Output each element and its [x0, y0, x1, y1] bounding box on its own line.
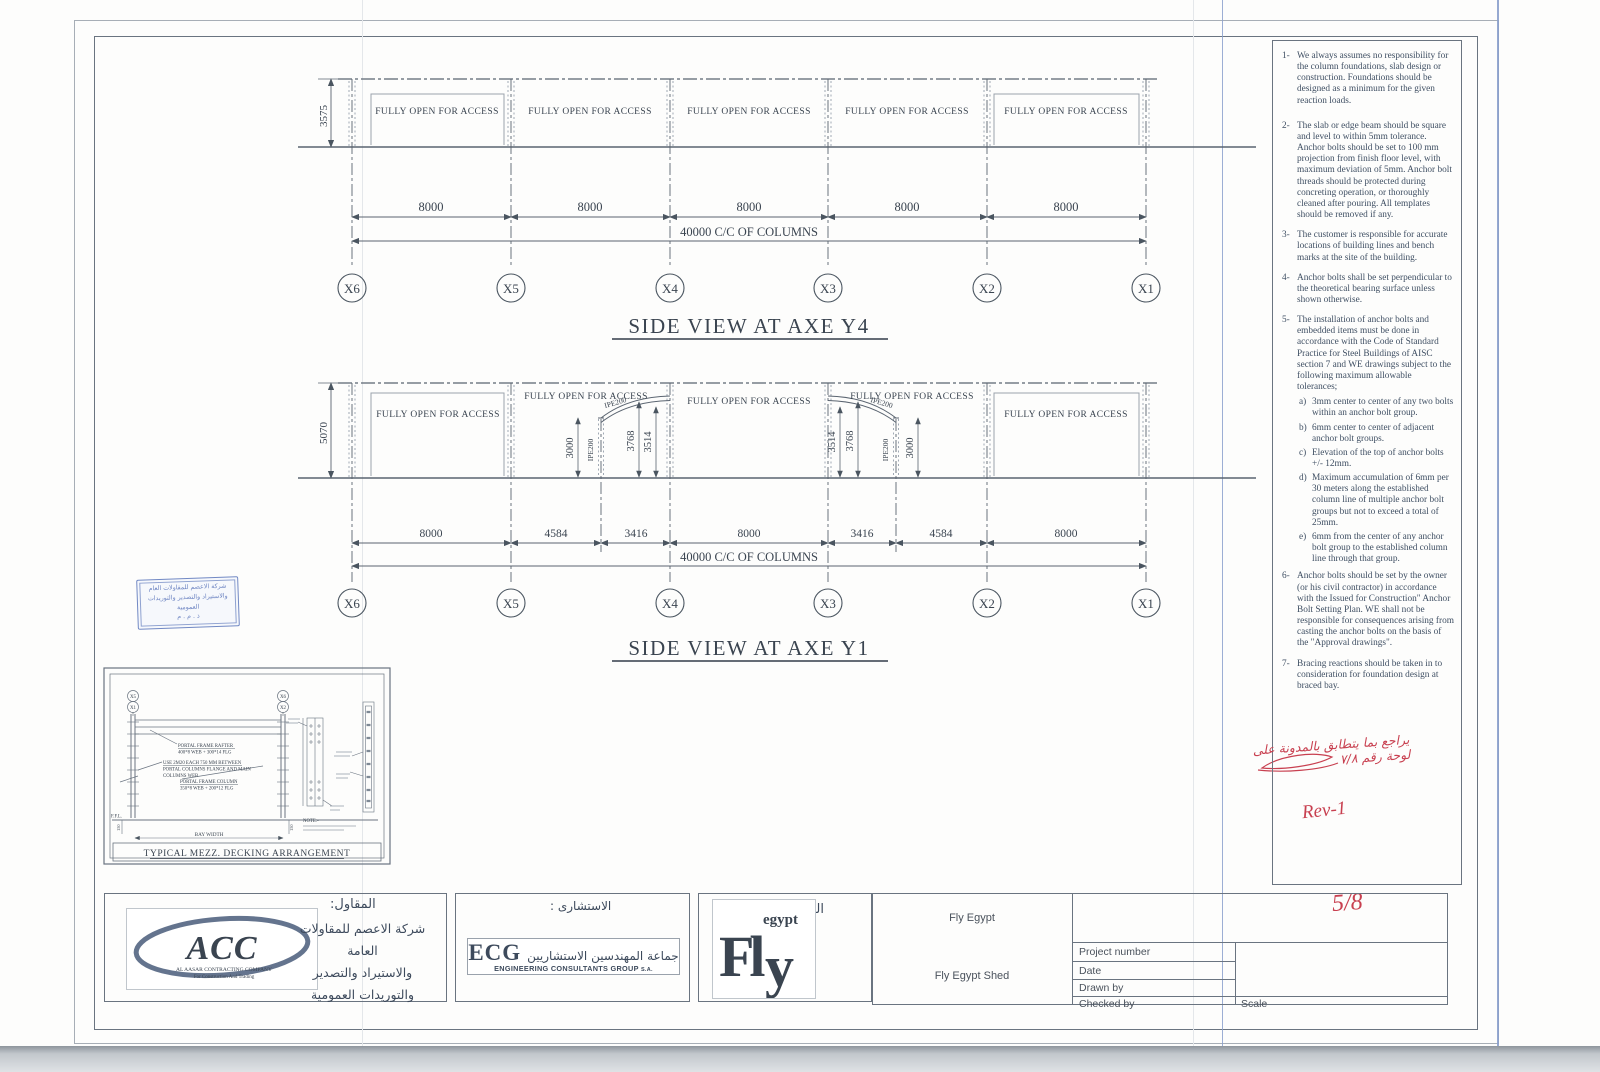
rev-annotation: Rev-1	[1301, 798, 1347, 825]
grid-bubble-x3: X3	[820, 596, 836, 611]
note-subitem: b) 6mm center to center of adjacent anch…	[1299, 423, 1454, 445]
contractor-stamp: شركة الاعصم للمقاولات العام والاستيراد و…	[136, 576, 240, 630]
view-title-y1: SIDE VIEW AT AXE Y1	[628, 636, 869, 660]
field-scale: Scale	[1241, 998, 1267, 1010]
grid-bubble-x6: X6	[344, 281, 360, 296]
open-label: FULLY OPEN FOR ACCESS	[687, 397, 811, 407]
ecg-logo-text: ECG	[468, 940, 521, 966]
detail-bolt-note-2: PORTAL COLUMNS FLANGE AND MAIN	[163, 768, 251, 773]
titleblock-row-line	[1072, 961, 1235, 962]
contractor-line: والتوريدات العمومية	[285, 984, 440, 1006]
detail-rafter-spec: 400*8 WEB + 300*14 FLG	[178, 751, 232, 756]
grid-bubble-x6: X6	[344, 596, 360, 611]
dim-total: 40000 C/C OF COLUMNS	[680, 550, 818, 564]
dim-8000: 8000	[737, 200, 762, 214]
detail-grid-x1: X1	[130, 706, 137, 711]
dim-8000: 8000	[420, 528, 443, 540]
grid-bubble-x5: X5	[503, 281, 519, 296]
note-subtext: 3mm center to center of any two bolts wi…	[1312, 397, 1454, 419]
grid-bubble-x3: X3	[820, 281, 836, 296]
grid-bubble-x2: X2	[979, 596, 995, 611]
titleblock-row-line	[1072, 979, 1235, 980]
stamp-line: ذ . م . م	[141, 611, 235, 624]
dim-8000: 8000	[895, 200, 920, 214]
open-label: FULLY OPEN FOR ACCESS	[528, 107, 652, 117]
ecg-sa: S.A.	[641, 967, 653, 973]
ecg-logo-arabic: جماعة المهندسين الاستشاريين	[527, 949, 679, 963]
note-item: 5- The installation of anchor bolts and …	[1282, 315, 1454, 393]
dim-3416: 3416	[851, 528, 874, 540]
ipe200-label: IPE200	[881, 439, 890, 462]
view-title-y4: SIDE VIEW AT AXE Y4	[628, 314, 869, 338]
fly-egypt-logo: Fl y egypt	[712, 899, 816, 999]
fly-logo-fl: Fl	[719, 924, 765, 989]
note-number: 4-	[1282, 273, 1297, 306]
open-label: FULLY OPEN FOR ACCESS	[524, 392, 648, 402]
consultant-label: الاستشارى :	[550, 899, 678, 913]
note-number: 1-	[1282, 51, 1297, 107]
note-number: 5-	[1282, 315, 1297, 393]
detail-bolt-note-1: USE 2M20 EACH 750 MM BETWEEN	[163, 761, 242, 766]
note-subitem: e) 6mm from the center of any anchor bol…	[1299, 532, 1454, 565]
detail-title: TYPICAL MEZZ. DECKING ARRANGEMENT	[144, 849, 351, 859]
grid-bubble-x1: X1	[1138, 596, 1154, 611]
ipe200-label: IPE200	[586, 439, 595, 462]
note-subtext: 6mm center to center of adjacent anchor …	[1312, 423, 1454, 445]
contractor-label: المقاول:	[330, 897, 440, 912]
dim-3575: 3575	[318, 105, 330, 128]
note-item: 6- Anchor bolts should be set by the own…	[1282, 571, 1454, 649]
note-number: 7-	[1282, 659, 1297, 692]
open-label: FULLY OPEN FOR ACCESS	[376, 410, 500, 420]
dim-3514: 3514	[643, 431, 654, 453]
dim-4584: 4584	[930, 528, 953, 540]
note-subitem: c) Elevation of the top of anchor bolts …	[1299, 448, 1454, 470]
contractor-line: شركة الاعصم للمقاولات العامة	[285, 918, 440, 962]
grid-bubble-x4: X4	[662, 281, 678, 296]
detail-grid-x5: X5	[130, 695, 137, 700]
acc-logo-subtitle: AL AASAR CONTRACTING COMPANY	[176, 967, 272, 973]
grid-bubble-x2: X2	[979, 281, 995, 296]
dim-8000: 8000	[1055, 528, 1078, 540]
note-text: The installation of anchor bolts and emb…	[1297, 315, 1454, 393]
note-number: 3-	[1282, 230, 1297, 263]
contractor-line: والاستيراد والتصدير	[285, 962, 440, 984]
dim-8000: 8000	[738, 528, 761, 540]
dim-8000: 8000	[1054, 200, 1079, 214]
grid-bubble-x4: X4	[662, 596, 678, 611]
note-text: The customer is responsible for accurate…	[1297, 230, 1454, 263]
fly-logo-egypt: egypt	[763, 912, 798, 928]
note-subtext: Maximum accumulation of 6mm per 30 meter…	[1312, 473, 1454, 529]
note-number: 6-	[1282, 571, 1297, 649]
ecg-logo: ECG جماعة المهندسين الاستشاريين ENGINEER…	[467, 938, 680, 975]
note-subitem: d) Maximum accumulation of 6mm per 30 me…	[1299, 473, 1454, 529]
acc-logo-tagline: For Construction And Trading	[194, 975, 255, 980]
note-subitem: a) 3mm center to center of any two bolts…	[1299, 397, 1454, 419]
detail-grid-x6: X6	[280, 695, 287, 700]
field-project-number: Project number	[1079, 946, 1150, 958]
dim-total: 40000 C/C OF COLUMNS	[680, 225, 818, 239]
scan-edge	[0, 1046, 1600, 1072]
open-label: FULLY OPEN FOR ACCESS	[1004, 410, 1128, 420]
ecg-caption: ENGINEERING CONSULTANTS GROUP	[494, 964, 639, 973]
grid-bubble-x1: X1	[1138, 281, 1154, 296]
ffl-label: F.F.L.	[111, 815, 122, 820]
field-date: Date	[1079, 965, 1101, 977]
note-item: 7- Bracing reactions should be taken in …	[1282, 659, 1454, 692]
note-item: 3- The customer is responsible for accur…	[1282, 230, 1454, 263]
note-subletter: c)	[1299, 448, 1312, 470]
detail-rafter-label: PORTAL FRAME RAFTER	[178, 744, 234, 749]
dim-3000: 3000	[905, 438, 916, 459]
open-label: FULLY OPEN FOR ACCESS	[850, 392, 974, 402]
acc-logo-text: ACC	[184, 930, 257, 967]
titleblock-divider	[1072, 893, 1073, 1005]
contractor-name-arabic: شركة الاعصم للمقاولات العامة والاستيراد …	[285, 918, 440, 1006]
note-text: Anchor bolts shall be set perpendicular …	[1297, 273, 1454, 306]
note-item: 1- We always assumes no responsibility f…	[1282, 51, 1454, 107]
bay-width-label: BAY WIDTH	[195, 832, 224, 838]
dim-8000: 8000	[419, 200, 444, 214]
grid-bubble-x5: X5	[503, 596, 519, 611]
note-subtext: Elevation of the top of anchor bolts +/-…	[1312, 448, 1454, 470]
dim-3514: 3514	[827, 431, 838, 453]
note-subletter: a)	[1299, 397, 1312, 419]
dim-150: 150	[289, 824, 294, 831]
project-owner: Fly Egypt	[872, 912, 1072, 924]
dim-3768: 3768	[845, 431, 856, 452]
note-text: Anchor bolts should be set by the owner …	[1297, 571, 1454, 649]
note-subtext: 6mm from the center of any anchor bolt g…	[1312, 532, 1454, 565]
titleblock-row-line	[1072, 942, 1448, 943]
project-name: Fly Egypt Shed	[872, 970, 1072, 982]
note-text: The slab or edge beam should be square a…	[1297, 121, 1454, 221]
note-subletter: e)	[1299, 532, 1312, 565]
note-item: 2- The slab or edge beam should be squar…	[1282, 121, 1454, 221]
open-label: FULLY OPEN FOR ACCESS	[375, 107, 499, 117]
fly-logo-y: y	[765, 934, 794, 998]
note-text: Bracing reactions should be taken in to …	[1297, 659, 1454, 692]
detail-grid-x2: X2	[280, 706, 287, 711]
note-number: 2-	[1282, 121, 1297, 221]
dim-5070: 5070	[318, 422, 330, 445]
note-text: We always assumes no responsibility for …	[1297, 51, 1454, 107]
field-checked-by: Checked by	[1079, 998, 1134, 1010]
open-label: FULLY OPEN FOR ACCESS	[687, 107, 811, 117]
dim-8000: 8000	[578, 200, 603, 214]
note-item: 4- Anchor bolts shall be set perpendicul…	[1282, 273, 1454, 306]
note-subletter: d)	[1299, 473, 1312, 529]
detail-column-spec: 350*8 WEB + 200*12 FLG	[180, 787, 234, 792]
detail-note-label: NOTE:-	[303, 819, 319, 824]
note-subletter: b)	[1299, 423, 1312, 445]
drawing-sheet: FULLY OPEN FOR ACCESS FULLY OPEN FOR ACC…	[0, 0, 1600, 1072]
open-label: FULLY OPEN FOR ACCESS	[845, 107, 969, 117]
dim-3416: 3416	[625, 528, 648, 540]
dim-3768: 3768	[626, 431, 637, 452]
dim-4584: 4584	[545, 528, 568, 540]
field-drawn-by: Drawn by	[1079, 982, 1123, 994]
detail-column-label: PORTAL FRAME COLUMN	[180, 780, 238, 785]
side-view-y1-linework	[298, 383, 1256, 661]
mezz-detail-linework	[104, 668, 390, 864]
open-label: FULLY OPEN FOR ACCESS	[1004, 107, 1128, 117]
project-box	[872, 893, 1448, 1005]
detail-bolt-note-3: COLUMNS WEB	[163, 774, 198, 779]
titleblock-row-line	[1072, 996, 1448, 997]
dim-150: 150	[116, 824, 121, 831]
dim-3000: 3000	[565, 438, 576, 459]
